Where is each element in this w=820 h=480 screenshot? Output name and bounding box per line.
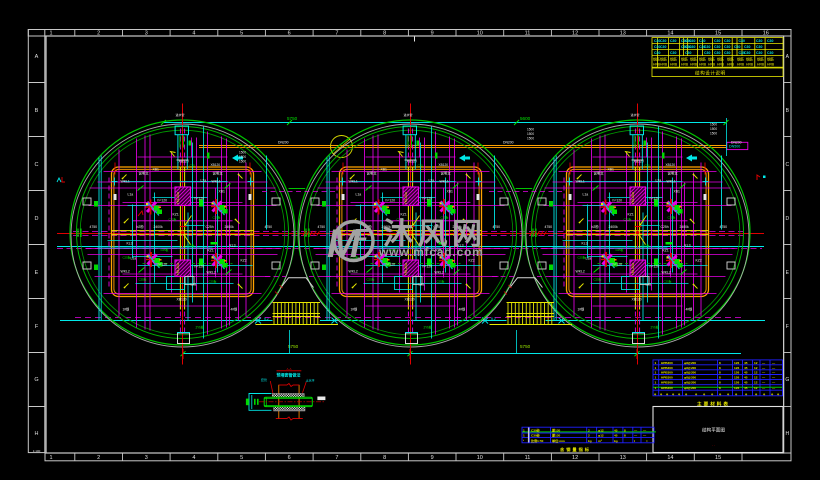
svg-text:C30: C30 <box>685 51 691 55</box>
svg-text:钢筋: 钢筋 <box>690 57 697 62</box>
svg-text:HRB: HRB <box>708 63 716 67</box>
svg-text:13: 13 <box>620 31 626 37</box>
svg-text:C30: C30 <box>714 39 720 43</box>
svg-text:12: 12 <box>754 381 758 385</box>
svg-text:1: 1 <box>49 455 52 461</box>
svg-text:8: 8 <box>719 386 721 390</box>
svg-text:12: 12 <box>572 31 578 37</box>
svg-text:钢筋: 钢筋 <box>767 57 774 62</box>
svg-text:C30: C30 <box>744 51 750 55</box>
svg-text:¹: ¹ <box>523 439 524 443</box>
svg-text:φ8@200: φ8@200 <box>684 381 696 385</box>
svg-text:5750: 5750 <box>520 344 531 349</box>
svg-text:钢筋: 钢筋 <box>746 57 753 62</box>
svg-text:HPB300: HPB300 <box>661 361 673 365</box>
svg-text:HRB: HRB <box>737 63 745 67</box>
svg-text:1: 1 <box>655 376 657 380</box>
svg-text:10: 10 <box>477 31 483 37</box>
svg-text:F: F <box>352 223 369 253</box>
svg-text:C30砼: C30砼 <box>531 433 541 438</box>
svg-text:≈: ≈ <box>646 439 648 443</box>
svg-text:C30: C30 <box>756 39 762 43</box>
svg-text:45: 45 <box>744 386 748 390</box>
svg-text:HRB: HRB <box>660 63 668 67</box>
svg-text:C30: C30 <box>724 45 730 49</box>
svg-text:H: H <box>785 431 789 437</box>
svg-text:8: 8 <box>719 381 721 385</box>
svg-text:厚120: 厚120 <box>552 433 561 438</box>
svg-text:126: 126 <box>734 381 739 385</box>
svg-text:C30: C30 <box>756 51 762 55</box>
svg-text:4: 4 <box>192 455 195 461</box>
svg-text:φ12: φ12 <box>598 428 604 432</box>
svg-text:126: 126 <box>734 366 739 370</box>
svg-text:C30: C30 <box>699 39 705 43</box>
svg-text:G: G <box>785 377 789 383</box>
svg-text:2: 2 <box>97 31 100 37</box>
svg-text:套管: 套管 <box>261 377 267 382</box>
svg-text:1500: 1500 <box>239 155 246 159</box>
svg-text:1500: 1500 <box>710 123 717 127</box>
svg-text:H: H <box>35 431 39 437</box>
svg-text:2: 2 <box>588 428 590 432</box>
svg-text:2: 2 <box>588 434 590 438</box>
svg-text:5: 5 <box>240 31 243 37</box>
svg-text:3: 3 <box>145 455 148 461</box>
svg-text:C: C <box>785 162 789 168</box>
svg-text:13: 13 <box>620 455 626 461</box>
svg-text:HRB: HRB <box>699 63 707 67</box>
svg-text:φ8@200: φ8@200 <box>684 376 696 380</box>
svg-text:1: 1 <box>655 371 657 375</box>
svg-text:kg: kg <box>614 439 618 443</box>
svg-text:C30: C30 <box>670 39 676 43</box>
svg-text:C30: C30 <box>660 45 666 49</box>
svg-text:7: 7 <box>335 455 338 461</box>
svg-text:4: 4 <box>192 31 195 37</box>
svg-text:DN200: DN200 <box>503 141 514 145</box>
svg-text:HPB300: HPB300 <box>661 371 673 375</box>
svg-text:HRB: HRB <box>757 63 765 67</box>
svg-text:HPB300: HPB300 <box>661 376 673 380</box>
svg-text:8: 8 <box>383 455 386 461</box>
svg-text:8: 8 <box>719 376 721 380</box>
svg-text:1: 1 <box>655 361 657 365</box>
svg-text:126: 126 <box>734 376 739 380</box>
svg-text:C30: C30 <box>714 51 720 55</box>
svg-text:F: F <box>786 324 789 330</box>
svg-text:C30: C30 <box>704 51 710 55</box>
svg-text:C30: C30 <box>767 39 773 43</box>
svg-text:C30: C30 <box>660 39 666 43</box>
svg-text:A-A: A-A <box>287 367 292 371</box>
svg-text:C30: C30 <box>756 45 762 49</box>
svg-text:45: 45 <box>744 371 748 375</box>
svg-text:1500: 1500 <box>527 132 534 136</box>
svg-text:HRB: HRB <box>690 63 698 67</box>
svg-text:1: 1 <box>49 31 52 37</box>
svg-text:φ8@200: φ8@200 <box>684 371 696 375</box>
svg-text:12: 12 <box>754 366 758 370</box>
svg-text:45: 45 <box>614 434 618 438</box>
svg-text:HRB: HRB <box>717 63 725 67</box>
svg-text:8: 8 <box>719 366 721 370</box>
svg-text:HPB300: HPB300 <box>661 366 673 370</box>
svg-text:D: D <box>785 216 789 222</box>
svg-text:C30: C30 <box>714 45 720 49</box>
svg-text:7: 7 <box>335 31 338 37</box>
svg-text:φ8@200: φ8@200 <box>684 361 696 365</box>
svg-text:DN500: DN500 <box>729 145 740 149</box>
svg-text:HRB: HRB <box>767 63 775 67</box>
svg-text:预埋套管做法: 预埋套管做法 <box>277 372 301 378</box>
svg-text:1500: 1500 <box>527 137 534 141</box>
svg-text:钢筋: 钢筋 <box>757 57 764 62</box>
svg-text:C30: C30 <box>744 45 750 49</box>
svg-text:比例1:50: 比例1:50 <box>531 438 544 443</box>
svg-text:1: 1 <box>523 434 525 438</box>
svg-text:C: C <box>35 162 39 168</box>
svg-text:9: 9 <box>431 31 434 37</box>
svg-text:1500: 1500 <box>527 128 534 132</box>
svg-text:C30: C30 <box>739 39 745 43</box>
svg-text:1: 1 <box>655 381 657 385</box>
svg-text:钢筋: 钢筋 <box>737 57 744 62</box>
svg-text:2: 2 <box>97 455 100 461</box>
svg-text:DN200: DN200 <box>731 141 742 145</box>
svg-text:126: 126 <box>734 386 739 390</box>
svg-text:HPB300: HPB300 <box>661 386 673 390</box>
svg-text:3: 3 <box>145 31 148 37</box>
svg-text:结构设计说明: 结构设计说明 <box>695 70 726 77</box>
svg-text:45: 45 <box>614 428 618 432</box>
svg-text:钢筋: 钢筋 <box>717 57 724 62</box>
svg-text:45: 45 <box>744 366 748 370</box>
svg-text:钢筋: 钢筋 <box>660 57 667 62</box>
svg-text:14: 14 <box>667 31 673 37</box>
svg-text:1: 1 <box>523 428 525 432</box>
svg-text:10: 10 <box>477 455 483 461</box>
svg-text:8: 8 <box>624 428 626 432</box>
svg-text:126: 126 <box>734 371 739 375</box>
svg-text:C30: C30 <box>689 45 695 49</box>
svg-text:φ8@200: φ8@200 <box>684 386 696 390</box>
svg-text:E: E <box>35 270 39 276</box>
svg-text:12: 12 <box>572 455 578 461</box>
svg-text:C30: C30 <box>724 51 730 55</box>
svg-text:1: 1 <box>655 366 657 370</box>
svg-text:HRB: HRB <box>670 63 678 67</box>
svg-text:12: 12 <box>754 376 758 380</box>
svg-text:6: 6 <box>288 31 291 37</box>
svg-text:5750: 5750 <box>287 116 298 121</box>
svg-text:钢筋: 钢筋 <box>699 57 706 62</box>
svg-text:· ·: · · <box>712 444 715 448</box>
svg-text:B: B <box>35 108 39 114</box>
svg-text:1500: 1500 <box>710 132 717 136</box>
svg-text:15: 15 <box>715 455 721 461</box>
svg-text:6: 6 <box>288 455 291 461</box>
svg-text:C30: C30 <box>670 51 676 55</box>
svg-text:1: 1 <box>655 386 657 390</box>
svg-text:厚120: 厚120 <box>552 427 561 432</box>
svg-text:9: 9 <box>431 455 434 461</box>
svg-text:45: 45 <box>744 376 748 380</box>
svg-text:C30: C30 <box>654 51 660 55</box>
svg-text:16: 16 <box>763 31 769 37</box>
svg-text:钢筋: 钢筋 <box>708 57 715 62</box>
svg-text:8: 8 <box>719 371 721 375</box>
svg-text:12: 12 <box>754 371 758 375</box>
svg-text:126: 126 <box>734 361 739 365</box>
svg-text:45: 45 <box>744 381 748 385</box>
svg-text:m²: m² <box>598 439 602 443</box>
svg-text:14: 14 <box>667 455 673 461</box>
svg-text:t: t <box>634 439 635 443</box>
svg-text:kg: kg <box>588 439 592 443</box>
svg-text:φ8@200: φ8@200 <box>684 366 696 370</box>
svg-text:8: 8 <box>624 434 626 438</box>
svg-text:φ12: φ12 <box>598 434 604 438</box>
svg-text:12: 12 <box>754 361 758 365</box>
svg-text:45: 45 <box>744 361 748 365</box>
svg-text:1:100: 1:100 <box>33 449 41 453</box>
svg-text:1500: 1500 <box>710 127 717 131</box>
svg-text:11: 11 <box>525 31 531 37</box>
svg-text:C30: C30 <box>734 45 740 49</box>
svg-text:1500: 1500 <box>239 160 246 164</box>
svg-text:D: D <box>35 216 39 222</box>
svg-text:5: 5 <box>240 455 243 461</box>
svg-text:C30砼: C30砼 <box>531 427 541 432</box>
svg-text:8: 8 <box>719 361 721 365</box>
svg-text:8: 8 <box>383 31 386 37</box>
svg-text:DN200: DN200 <box>278 141 289 145</box>
svg-text:钢筋: 钢筋 <box>727 57 734 62</box>
svg-text:5600: 5600 <box>520 116 531 121</box>
svg-text:A: A <box>35 54 39 60</box>
svg-text:钢筋: 钢筋 <box>681 57 688 62</box>
svg-text:钢筋: 钢筋 <box>670 57 677 62</box>
svg-text:C30: C30 <box>704 45 710 49</box>
svg-text:单位:mm: 单位:mm <box>552 438 565 443</box>
svg-text:HRB: HRB <box>681 63 689 67</box>
svg-text:HPB300: HPB300 <box>661 381 673 385</box>
svg-text:11: 11 <box>525 455 531 461</box>
svg-text:www.mfcad.com: www.mfcad.com <box>378 245 484 259</box>
svg-text:HRB: HRB <box>746 63 754 67</box>
svg-text:12: 12 <box>754 386 758 390</box>
svg-text:C30: C30 <box>724 39 730 43</box>
svg-text:止水环: 止水环 <box>306 377 315 382</box>
svg-text:15: 15 <box>715 31 721 37</box>
svg-text:1500: 1500 <box>239 151 246 155</box>
svg-text:C30: C30 <box>689 39 695 43</box>
svg-text:结构平面图: 结构平面图 <box>702 427 725 434</box>
svg-text:G: G <box>34 377 38 383</box>
svg-text:C30: C30 <box>767 51 773 55</box>
svg-text:HRB: HRB <box>727 63 735 67</box>
svg-text:含钢量指标: 含钢量指标 <box>560 446 591 453</box>
